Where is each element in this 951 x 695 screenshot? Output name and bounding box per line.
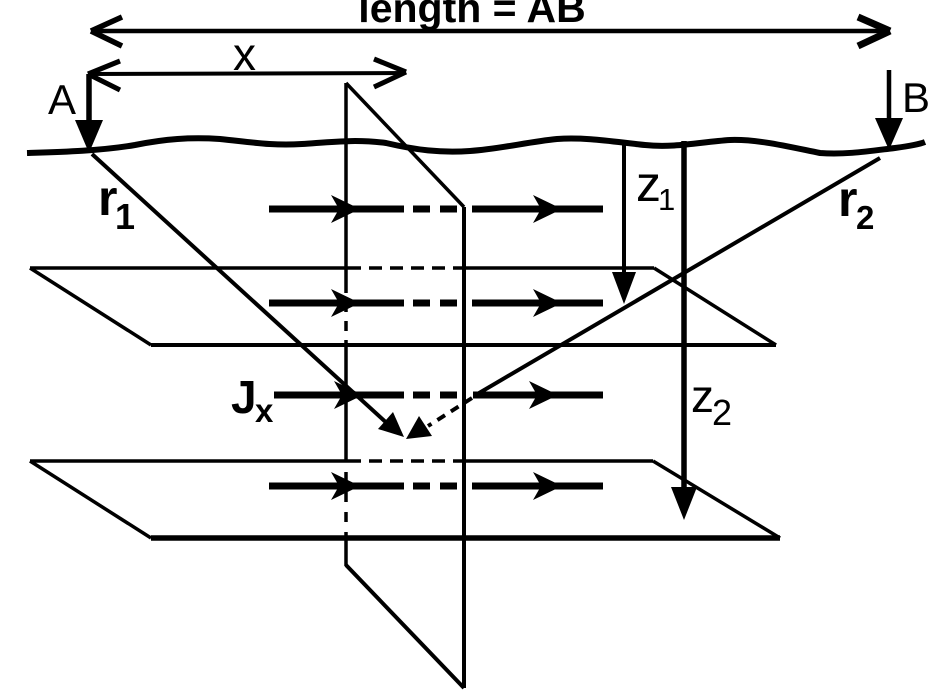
svg-text:B: B xyxy=(902,74,930,121)
svg-text:r: r xyxy=(838,171,857,227)
svg-text:J: J xyxy=(231,371,257,423)
svg-text:1: 1 xyxy=(658,182,675,217)
svg-text:2: 2 xyxy=(712,392,732,433)
svg-text:1: 1 xyxy=(115,196,135,237)
svg-text:x: x xyxy=(255,392,274,429)
svg-text:2: 2 xyxy=(856,199,874,236)
svg-text:z: z xyxy=(691,370,714,422)
svg-text:length = AB: length = AB xyxy=(358,0,585,31)
svg-text:A: A xyxy=(48,76,76,123)
